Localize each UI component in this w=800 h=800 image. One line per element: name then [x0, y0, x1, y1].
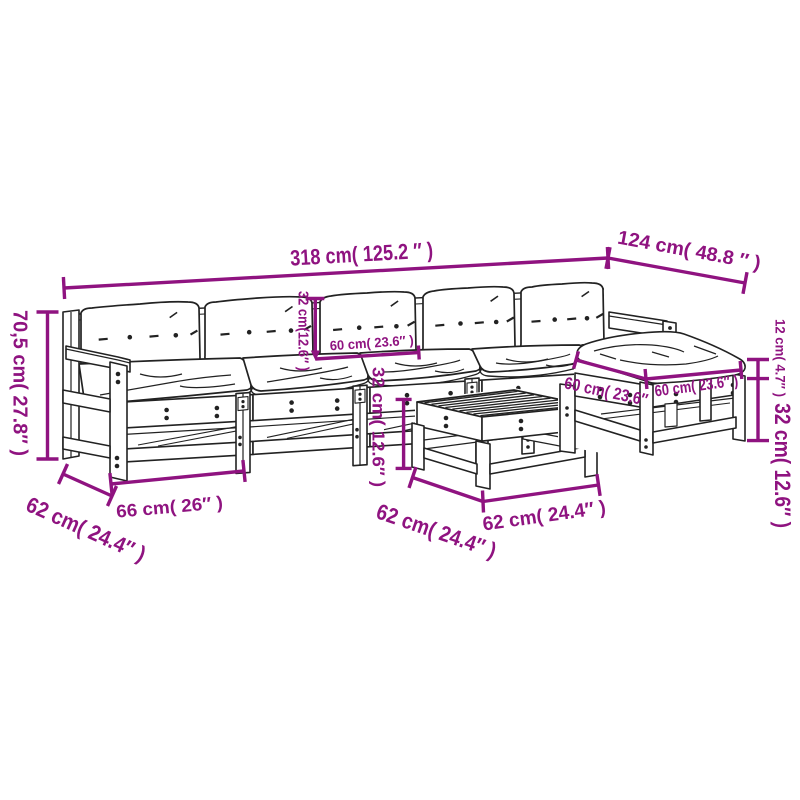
- svg-text:70,5 cm( 27.8″ ): 70,5 cm( 27.8″ ): [9, 310, 31, 456]
- svg-text:66 cm( 26″ ): 66 cm( 26″ ): [115, 492, 223, 521]
- svg-text:12 cm( 4.7″ ): 12 cm( 4.7″ ): [773, 319, 788, 397]
- svg-text:62 cm( 24.4″ ): 62 cm( 24.4″ ): [481, 497, 607, 536]
- svg-text:32 cm(12.6″ ): 32 cm(12.6″ ): [295, 291, 312, 371]
- svg-text:32 cm( 12.6″ ): 32 cm( 12.6″ ): [369, 367, 389, 487]
- svg-text:318 cm( 125.2 ″ ): 318 cm( 125.2 ″ ): [289, 237, 433, 270]
- svg-text:124 cm( 48.8 ″ ): 124 cm( 48.8 ″ ): [616, 227, 763, 275]
- svg-text:32 cm( 12.6″ ): 32 cm( 12.6″ ): [770, 403, 795, 528]
- svg-text:62 cm( 24.4″ ): 62 cm( 24.4″ ): [373, 499, 499, 563]
